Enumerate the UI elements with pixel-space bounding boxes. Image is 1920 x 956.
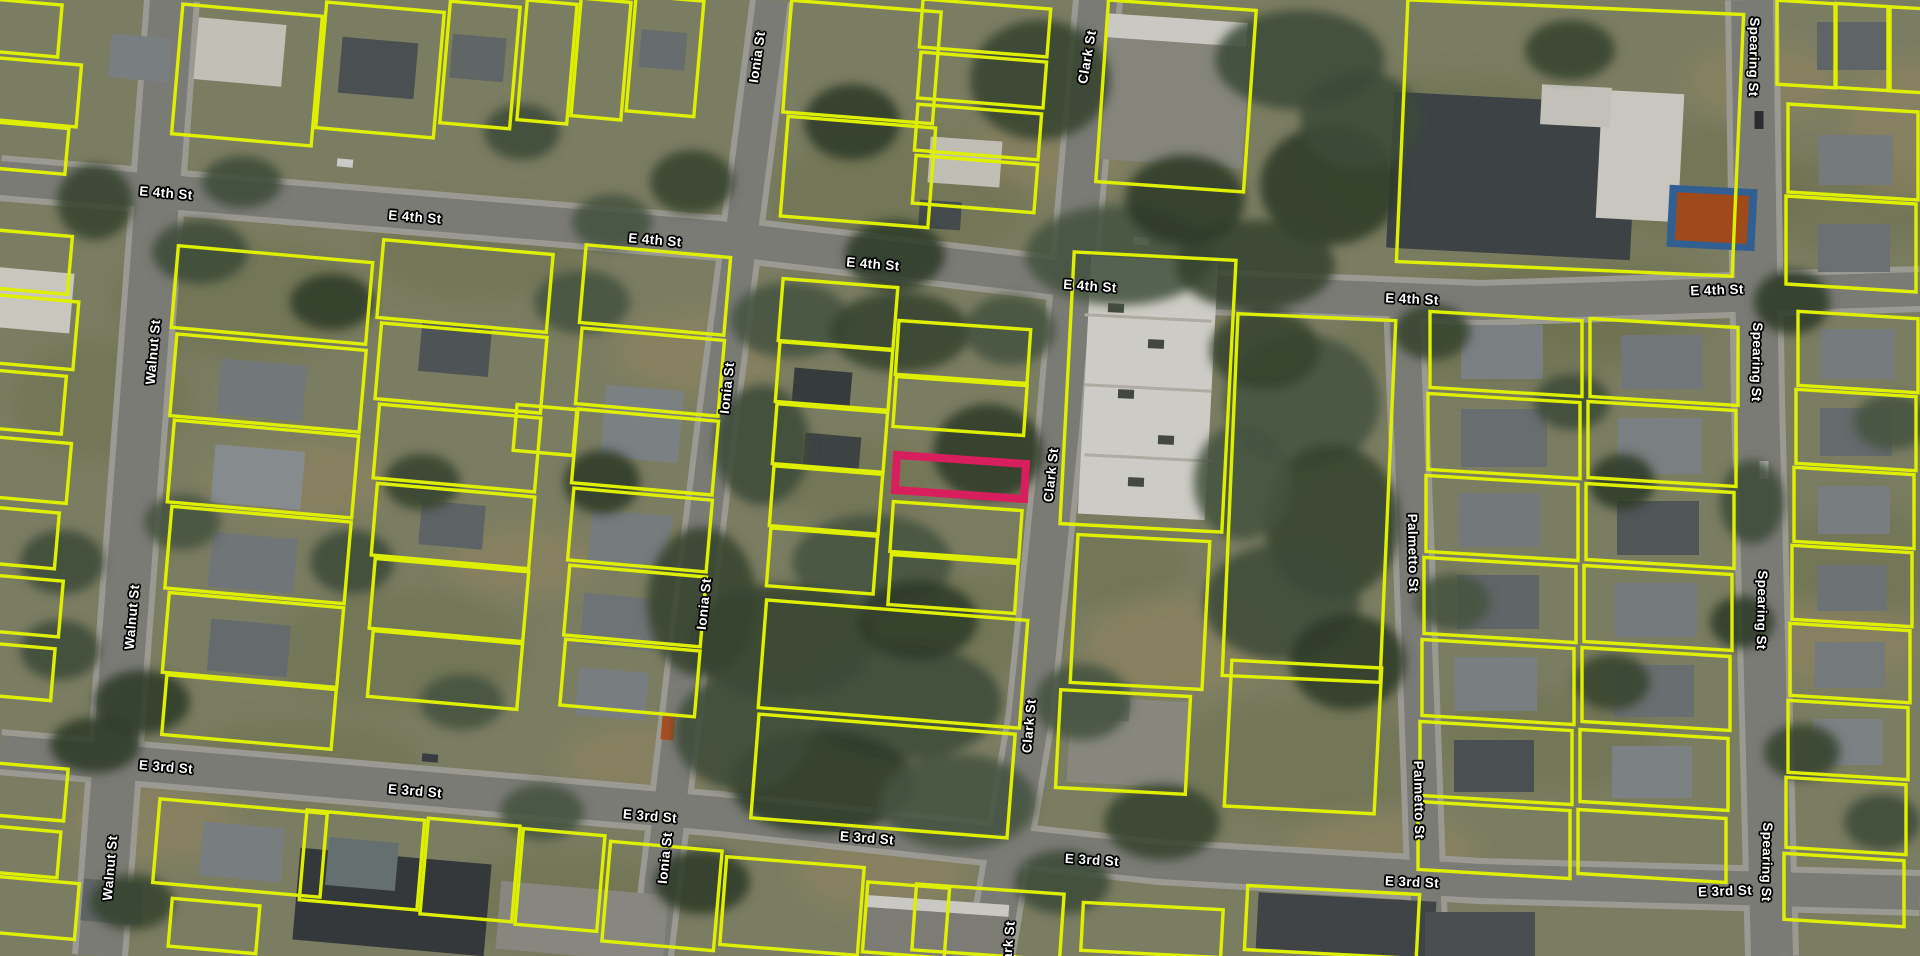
aerial-map-canvas[interactable]	[0, 0, 1920, 956]
map-viewport[interactable]: E 4th StE 4th StE 4th StE 4th StE 4th St…	[0, 0, 1920, 956]
